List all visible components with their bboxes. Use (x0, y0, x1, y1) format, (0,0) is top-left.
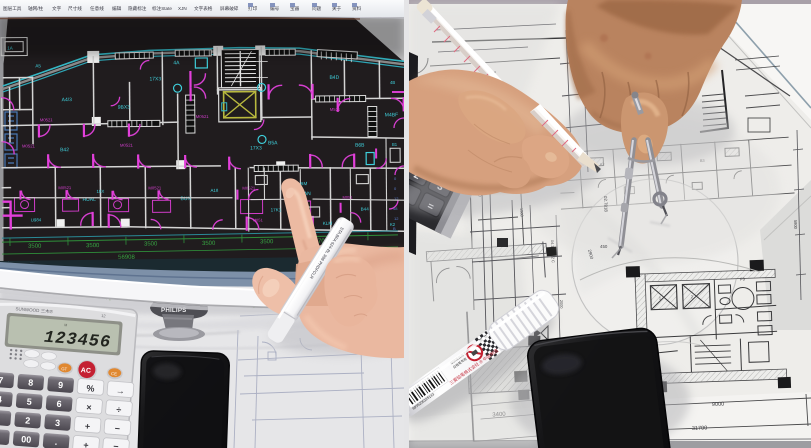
svg-text:....: .... (30, 259, 34, 264)
svg-text:轴网/柱: 轴网/柱 (28, 5, 43, 12)
svg-text:→: → (115, 385, 125, 396)
svg-text:XJN: XJN (178, 6, 187, 11)
svg-text:M0521: M0521 (196, 114, 210, 119)
svg-text:+: + (83, 440, 89, 448)
svg-text:2000: 2000 (559, 300, 563, 309)
svg-text:编辑: 编辑 (112, 5, 122, 12)
svg-text:02.7818: 02.7818 (603, 196, 609, 213)
svg-text:AC: AC (81, 367, 92, 375)
svg-text:U984: U984 (31, 217, 42, 222)
svg-text:%: % (86, 383, 95, 394)
svg-text:3500: 3500 (144, 241, 158, 247)
svg-text:B: B (393, 226, 396, 231)
svg-text:A4/3: A4/3 (62, 97, 73, 103)
svg-text:文字表格: 文字表格 (194, 5, 213, 12)
svg-text:3500: 3500 (28, 244, 42, 250)
svg-text:屏幕破碎: 屏幕破碎 (220, 5, 239, 12)
svg-text:M051: M051 (342, 195, 353, 200)
svg-text:M0521: M0521 (148, 185, 162, 190)
svg-text:−: − (114, 423, 120, 433)
svg-text:2: 2 (25, 415, 31, 425)
svg-text:M: M (64, 323, 67, 327)
svg-text:CE: CE (111, 371, 117, 376)
svg-text:B44: B44 (361, 207, 370, 212)
svg-text:A5: A5 (35, 63, 41, 68)
svg-text:÷: ÷ (116, 405, 122, 415)
svg-text:任意线: 任意线 (90, 5, 104, 12)
svg-text:KLM: KLM (323, 221, 333, 226)
svg-text:M0521: M0521 (120, 143, 134, 148)
svg-text:BUN: BUN (180, 196, 191, 202)
svg-text:B42: B42 (60, 147, 69, 153)
svg-text:48: 48 (393, 206, 398, 211)
svg-text:M0521: M0521 (40, 117, 54, 122)
svg-text:+: + (84, 421, 90, 431)
svg-text:B5A: B5A (268, 140, 278, 146)
svg-text:9000: 9000 (712, 401, 725, 408)
svg-text:5800: 5800 (793, 220, 798, 230)
svg-text:尺寸线: 尺寸线 (68, 5, 82, 12)
svg-text:M4BF: M4BF (385, 112, 398, 118)
svg-text:3500: 3500 (260, 239, 274, 245)
svg-text:450: 450 (600, 244, 608, 249)
svg-text:3500: 3500 (86, 243, 100, 249)
svg-text:M0521: M0521 (22, 143, 36, 148)
svg-text:17K1: 17K1 (271, 207, 282, 212)
svg-text:M0521: M0521 (242, 186, 256, 191)
svg-text:4B: 4B (390, 80, 395, 85)
svg-text:9BX3: 9BX3 (118, 105, 131, 111)
svg-text:文字: 文字 (52, 5, 62, 12)
svg-text:M051: M051 (253, 217, 264, 222)
svg-text:31700: 31700 (692, 425, 708, 432)
svg-text:×: × (86, 402, 92, 412)
svg-text:00: 00 (21, 434, 32, 445)
svg-text:标注State: 标注State (152, 5, 172, 12)
svg-text:5: 5 (26, 396, 32, 406)
svg-text:8: 8 (28, 378, 34, 388)
svg-text:3500: 3500 (202, 241, 216, 247)
svg-text:3: 3 (55, 418, 61, 428)
svg-text:隐藏标注: 隐藏标注 (128, 5, 147, 12)
svg-text:17X3: 17X3 (149, 76, 161, 82)
svg-text:9: 9 (58, 380, 64, 390)
svg-text:GT: GT (61, 366, 68, 371)
svg-text:4A: 4A (173, 60, 180, 66)
svg-text:B4D: B4D (329, 75, 339, 81)
svg-text:12: 12 (394, 216, 399, 221)
svg-text:B6B: B6B (355, 143, 365, 149)
svg-text:18X: 18X (96, 189, 104, 194)
svg-text:A18: A18 (210, 188, 218, 193)
svg-text:B1: B1 (392, 142, 398, 147)
svg-text:M0521: M0521 (58, 185, 72, 190)
svg-text:17X3: 17X3 (250, 145, 262, 151)
svg-text:=: = (113, 442, 119, 448)
svg-text:6: 6 (56, 399, 62, 409)
svg-text:M521: M521 (330, 107, 341, 112)
